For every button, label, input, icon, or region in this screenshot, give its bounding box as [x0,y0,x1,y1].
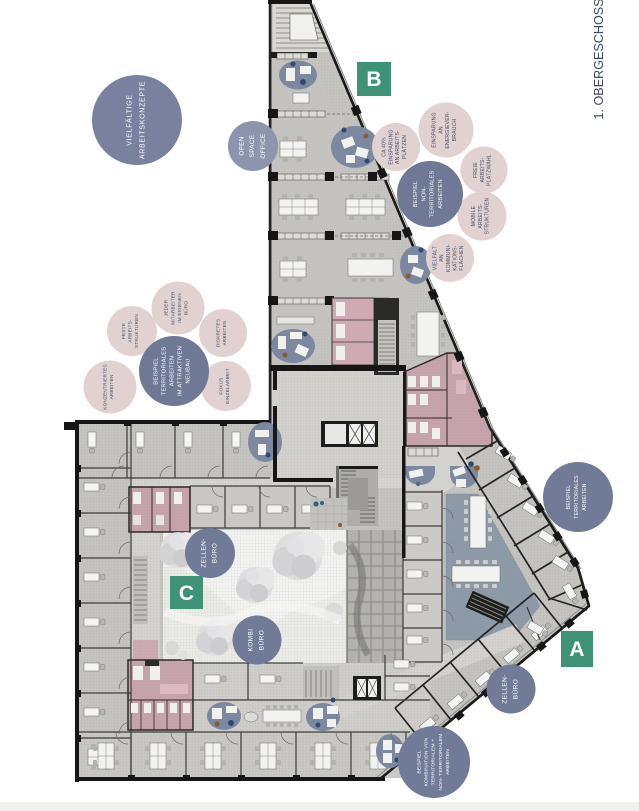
svg-text:TERRITORIALEM +: TERRITORIALEM + [431,739,437,786]
svg-text:MOBILE: MOBILE [471,205,477,226]
svg-text:FOKUS: FOKUS [218,377,223,394]
svg-text:TERRITORIALES: TERRITORIALES [162,347,168,396]
svg-text:TERRITORIALES: TERRITORIALES [574,475,580,519]
svg-text:STRUKTUREN: STRUKTUREN [134,314,139,348]
svg-text:ARBEITSKONZEPTE: ARBEITSKONZEPTE [139,81,146,159]
svg-text:KATIONS-: KATIONS- [453,245,459,270]
svg-text:VIELFALT: VIELFALT [432,246,438,270]
svg-text:ARBEITS-: ARBEITS- [480,157,486,182]
svg-text:ZELLEN-: ZELLEN- [501,674,508,704]
svg-text:TERRITORIALES: TERRITORIALES [430,170,436,217]
svg-text:BÜRO: BÜRO [210,543,218,563]
svg-text:IM ATTRAKTIVEN: IM ATTRAKTIVEN [177,346,183,396]
svg-text:SPACE: SPACE [249,135,256,158]
svg-text:BRAUCH: BRAUCH [452,119,458,142]
svg-text:EINSPARUNG: EINSPARUNG [431,112,437,147]
svg-text:1. OBERGESCHOSS: 1. OBERGESCHOSS [592,0,606,120]
svg-text:NEUBAU: NEUBAU [185,358,191,383]
svg-text:ARBEITS-: ARBEITS- [128,319,133,342]
svg-text:ARBEITEN: ARBEITEN [222,320,227,345]
svg-text:FESTE: FESTE [121,323,126,339]
svg-text:BÜRO: BÜRO [183,301,189,315]
svg-text:A: A [569,638,584,661]
svg-text:ENERGIEVER-: ENERGIEVER- [445,111,451,148]
svg-text:DISKRETES: DISKRETES [215,319,220,347]
svg-text:JEDER: JEDER [164,299,169,316]
svg-text:FREIE: FREIE [473,162,479,178]
svg-text:CA 40%: CA 40% [381,137,387,157]
svg-text:NON- TERRITORIALEM: NON- TERRITORIALEM [438,734,444,791]
svg-text:OFFICE: OFFICE [260,133,267,158]
svg-text:C: C [179,582,194,605]
svg-text:KONZENTRIERTES: KONZENTRIERTES [102,364,107,409]
svg-text:KOMBINATION VON: KOMBINATION VON [424,737,430,786]
svg-text:EINZELARBEIT: EINZELARBEIT [225,368,230,404]
svg-text:ARBEITEN: ARBEITEN [438,179,444,209]
svg-text:FLÄCHEN: FLÄCHEN [458,245,465,270]
svg-text:BEISPIEL: BEISPIEL [416,750,422,773]
svg-text:B: B [366,68,381,91]
svg-text:BÜRO: BÜRO [511,679,519,699]
svg-text:IM EIGENEN: IM EIGENEN [177,293,182,323]
svg-text:PLÄTZEN: PLÄTZEN [401,135,408,159]
svg-text:STRUKTUREN: STRUKTUREN [485,197,491,234]
svg-text:AN: AN [439,254,445,262]
svg-text:ARBEITEN: ARBEITEN [582,483,588,510]
svg-text:ARBEITS-: ARBEITS- [478,203,484,228]
svg-text:KOMMUNI-: KOMMUNI- [446,244,452,272]
svg-text:MITARBEITER: MITARBEITER [170,291,175,325]
svg-text:AN: AN [438,126,444,134]
svg-text:BEISPIEL: BEISPIEL [413,181,419,207]
svg-text:AN ARBEITS-: AN ARBEITS- [395,130,401,164]
svg-text:BEISPIEL: BEISPIEL [154,357,160,385]
svg-text:KOMBI: KOMBI [247,629,254,652]
svg-text:ARBEITEN: ARBEITEN [445,749,451,775]
svg-text:EINSPARUNG: EINSPARUNG [388,129,394,164]
svg-text:VIELFÄLTIGE: VIELFÄLTIGE [125,94,133,146]
svg-text:ZELLEN-: ZELLEN- [200,538,207,568]
svg-text:ARBEITEN: ARBEITEN [170,356,176,387]
svg-text:ARBEITEN: ARBEITEN [109,374,114,399]
svg-text:PLATZWAHL: PLATZWAHL [487,154,493,186]
svg-text:NON-: NON- [421,186,427,201]
svg-text:BÜRO: BÜRO [257,630,265,650]
svg-text:BEISPIEL: BEISPIEL [566,485,572,510]
svg-text:OPEN: OPEN [239,136,246,155]
